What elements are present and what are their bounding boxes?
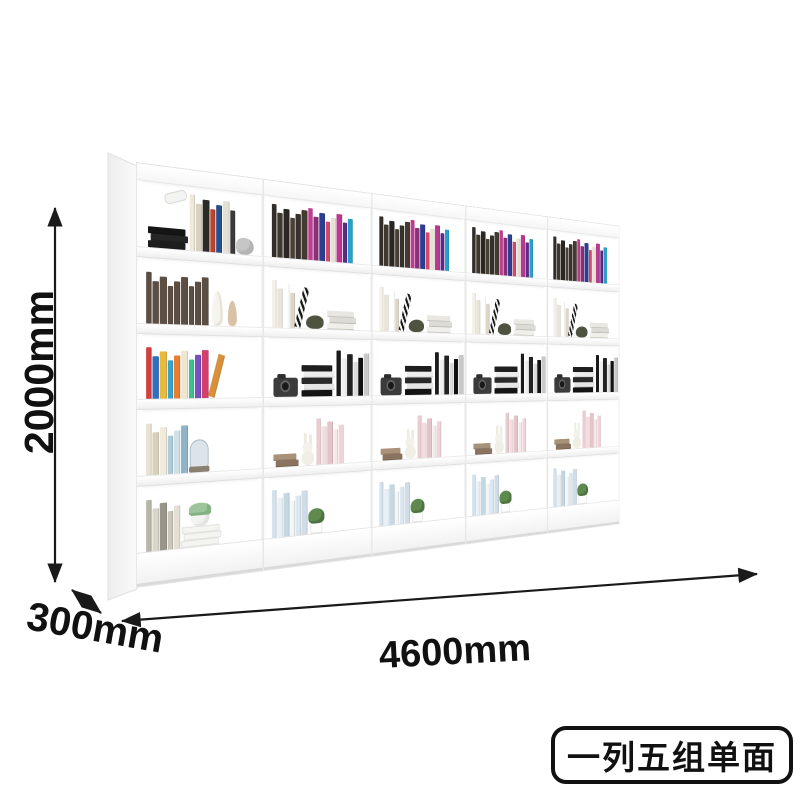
width-dimension-label: 4600mm	[349, 626, 561, 681]
book-spine	[561, 240, 565, 280]
book-spine	[196, 203, 202, 251]
shelf-contents	[146, 421, 254, 476]
shelf-unit	[136, 162, 263, 588]
shelf-contents	[472, 292, 542, 335]
shelf-contents	[379, 286, 459, 333]
book-spine	[521, 354, 524, 394]
shelf-unit	[372, 193, 466, 557]
book-spine	[379, 216, 383, 266]
book-spine	[189, 286, 194, 325]
book-spine	[445, 229, 449, 271]
shelf-contents	[272, 279, 365, 330]
book-spine	[521, 235, 525, 277]
shelf-compartment	[377, 209, 462, 272]
book-stack	[514, 319, 536, 336]
book-spine	[358, 358, 363, 396]
shelf-unit	[548, 216, 620, 533]
book-spine	[296, 495, 301, 535]
book-spine	[439, 360, 443, 395]
book-spine	[513, 241, 516, 276]
potstack-prop	[181, 502, 220, 548]
shelf-contents	[472, 412, 542, 455]
book-spine	[604, 247, 607, 283]
shelf-contents	[553, 298, 614, 339]
book-spine	[400, 225, 405, 267]
book-spine	[146, 500, 151, 552]
book-spine	[561, 470, 565, 506]
book-spine	[223, 201, 230, 254]
rabbit-prop	[572, 422, 582, 449]
book-spine	[283, 493, 289, 537]
deer-prop	[209, 285, 239, 326]
shelf-contents	[379, 414, 459, 461]
bookshelf	[136, 162, 620, 588]
book-stack	[494, 367, 519, 394]
shelf-unit	[263, 179, 372, 571]
book-spine	[146, 348, 151, 400]
book-spine	[508, 234, 512, 276]
book-spine	[189, 360, 194, 399]
book-spine	[472, 292, 475, 333]
book-spine	[160, 352, 167, 399]
book-spine	[441, 233, 445, 271]
shelf-contents	[379, 216, 459, 272]
shelf-compartment	[377, 274, 462, 333]
book-spine	[216, 205, 222, 253]
shelf-compartment	[470, 342, 544, 394]
book-spine	[490, 479, 494, 514]
book-spine	[230, 210, 235, 254]
book-spine	[614, 358, 618, 392]
book-spine	[168, 436, 173, 474]
book-spine	[389, 484, 394, 525]
shelf-compartment	[142, 257, 257, 326]
book-spine	[415, 228, 419, 269]
book-spine	[277, 288, 282, 327]
book-spine	[603, 358, 607, 392]
bookshelf-photo	[136, 162, 800, 588]
book-spine	[153, 432, 159, 475]
book-spine	[585, 243, 589, 282]
book-spine	[418, 415, 422, 458]
book-spine	[347, 354, 353, 396]
book-spine	[405, 221, 410, 267]
shelf-compartment	[551, 230, 616, 284]
book-spine	[427, 418, 432, 458]
book-spine	[596, 243, 600, 283]
book-spine	[476, 234, 480, 273]
book-spine	[529, 357, 533, 393]
shelf-contents	[272, 204, 365, 265]
book-stack	[590, 322, 609, 338]
book-spine	[146, 271, 151, 323]
shelf-contents	[146, 271, 254, 326]
book-spine	[454, 359, 458, 394]
book-spine	[321, 426, 326, 464]
book-spine	[364, 354, 369, 396]
book-spine	[343, 222, 347, 262]
book-spine	[541, 357, 545, 394]
book-spine	[499, 230, 502, 275]
book-spine	[472, 474, 475, 515]
book-spine	[153, 281, 159, 324]
book-spine	[308, 208, 312, 260]
rabbit-prop	[301, 433, 316, 466]
camera-prop	[554, 377, 570, 393]
book-spine	[319, 213, 325, 261]
rabbit-prop	[494, 425, 505, 453]
shelf-contents	[472, 353, 542, 394]
book-spine	[481, 477, 486, 515]
book-spine	[514, 416, 518, 453]
shelf-compartment	[377, 340, 462, 396]
book-spine	[486, 484, 489, 515]
shelf-compartment	[470, 220, 544, 278]
camera-prop	[381, 378, 402, 396]
book-spine	[486, 239, 489, 275]
book-spine	[327, 422, 333, 465]
book-spine	[202, 277, 209, 325]
book-spine	[597, 416, 600, 448]
moss-prop	[576, 326, 588, 337]
shelf-compartment	[377, 465, 462, 527]
book-spine	[174, 281, 180, 324]
shelf-side-panel	[108, 153, 137, 600]
book-spine	[389, 221, 394, 267]
shelf-contents	[272, 350, 365, 398]
book-stack	[554, 439, 571, 450]
book-spine	[433, 426, 437, 458]
book-spine	[573, 469, 577, 505]
book-spine	[526, 242, 529, 277]
shelf-contents	[553, 236, 614, 284]
book-spine	[490, 235, 494, 274]
camera-prop	[273, 378, 297, 397]
book-spine	[537, 360, 541, 393]
book-spine	[517, 238, 521, 277]
shelf-contents	[379, 352, 459, 396]
book-spine	[160, 427, 167, 475]
book-spine	[561, 301, 565, 336]
book-spine	[195, 355, 201, 398]
shelf-compartment	[269, 196, 367, 264]
book-spine	[153, 357, 159, 400]
plant-prop	[577, 482, 588, 505]
book-spine	[290, 500, 295, 536]
book-spine	[379, 482, 383, 526]
shelf-compartment	[142, 479, 257, 553]
shelf-contents	[379, 476, 459, 526]
book-spine	[384, 294, 389, 331]
variant-badge-text: 一列五组单面	[567, 731, 777, 779]
shelf-contents	[146, 188, 254, 255]
book-spine	[181, 426, 188, 474]
book-spine	[168, 361, 173, 399]
book-spine	[405, 482, 410, 523]
book-spine	[174, 356, 180, 399]
book-stack	[148, 226, 188, 250]
book-spine	[168, 285, 173, 323]
book-stack	[381, 448, 403, 461]
book-spine	[506, 413, 509, 453]
book-spine	[435, 225, 440, 270]
book-spine	[181, 351, 188, 399]
book-spine	[557, 243, 561, 280]
variant-badge: 一列五组单面	[551, 726, 793, 784]
book-spine	[509, 420, 513, 453]
book-spine	[430, 228, 434, 269]
book-spine	[573, 241, 577, 281]
book-spine	[181, 276, 188, 324]
book-spine	[379, 286, 383, 330]
shelf-compartment	[142, 408, 257, 476]
height-dimension-label: 2000mm	[16, 267, 62, 477]
book-spine	[450, 363, 454, 394]
book-spine	[384, 489, 389, 526]
shelf-compartment	[269, 337, 367, 397]
book-spine	[174, 431, 180, 474]
book-spine	[337, 214, 343, 263]
book-stack	[405, 366, 433, 395]
book-spine	[400, 487, 405, 524]
shelf-contents	[146, 348, 254, 400]
book-spine	[384, 224, 389, 266]
shelf-compartment	[269, 267, 367, 331]
book-spine	[160, 276, 167, 324]
shelf-compartment	[377, 403, 462, 461]
book-spine	[481, 296, 486, 334]
book-spine	[590, 413, 594, 448]
shelf-compartment	[470, 281, 544, 336]
book-spine	[190, 194, 195, 250]
book-spine	[326, 221, 330, 261]
leaning-book	[208, 354, 225, 398]
book-spine	[395, 491, 399, 524]
book-spine	[195, 281, 201, 325]
book-spine	[334, 429, 338, 463]
shelf-contents	[553, 464, 614, 507]
book-spine	[569, 244, 572, 281]
shelf-compartment	[470, 459, 544, 516]
book-stack	[273, 453, 298, 467]
camera-prop	[473, 378, 491, 395]
book-spine	[272, 279, 277, 327]
book-spine	[420, 224, 425, 269]
book-spine	[422, 423, 426, 459]
book-spine	[529, 239, 533, 278]
shelf-compartment	[551, 287, 616, 338]
book-spine	[290, 217, 295, 258]
shelf-compartment	[142, 334, 257, 400]
shelf-contents	[272, 417, 365, 467]
rabbit-prop	[404, 429, 417, 460]
book-spine	[283, 209, 289, 259]
shelf-contents	[472, 469, 542, 516]
book-spine	[348, 218, 353, 263]
book-spine	[395, 229, 399, 267]
mic-prop	[163, 189, 188, 205]
book-stack	[302, 365, 335, 396]
book-spine	[153, 508, 159, 551]
book-spine	[494, 232, 498, 275]
book-spine	[174, 505, 180, 548]
book-spine	[476, 300, 480, 334]
book-stack	[427, 315, 452, 333]
book-spine	[337, 351, 341, 397]
moss-prop	[306, 315, 324, 329]
book-stack	[573, 367, 595, 393]
shelf-compartment	[142, 181, 257, 256]
book-spine	[476, 481, 480, 515]
depth-dimension-label: 300mm	[7, 592, 182, 667]
book-spine	[342, 359, 347, 397]
plant-prop	[308, 506, 324, 534]
shelf-compartment	[551, 454, 616, 507]
book-spine	[519, 422, 522, 452]
shelf-contents	[472, 227, 542, 279]
shelf-compartment	[551, 344, 616, 393]
book-spine	[283, 284, 289, 328]
book-spine	[472, 227, 475, 273]
book-spine	[272, 204, 277, 257]
book-spine	[316, 419, 320, 465]
book-spine	[203, 199, 210, 251]
book-spine	[353, 362, 357, 396]
book-spine	[313, 216, 318, 260]
book-spine	[277, 212, 282, 257]
plant-prop	[411, 497, 425, 523]
book-spine	[389, 290, 394, 331]
moss-prop	[498, 323, 511, 335]
book-spine	[459, 355, 464, 394]
shelf-compartment	[269, 405, 367, 468]
book-spine	[557, 304, 561, 336]
book-spine	[331, 217, 336, 261]
book-spine	[160, 502, 167, 550]
moss-prop	[409, 319, 424, 332]
book-stack	[473, 443, 492, 455]
book-spine	[522, 418, 526, 452]
book-spine	[437, 421, 441, 457]
book-spine	[302, 210, 308, 260]
book-spine	[426, 232, 430, 269]
book-spine	[296, 214, 301, 259]
shelf-compartment	[269, 471, 367, 538]
book-spine	[494, 475, 498, 513]
shelf-unit	[466, 206, 548, 545]
book-spine	[202, 350, 209, 398]
book-spine	[339, 425, 344, 464]
rock-prop	[236, 237, 254, 255]
shelf-compartment	[470, 401, 544, 455]
book-spine	[557, 474, 561, 506]
book-spine	[569, 473, 572, 505]
shelf-compartment	[551, 400, 616, 450]
book-stack	[327, 310, 356, 329]
plant-prop	[499, 489, 511, 513]
book-spine	[444, 356, 449, 395]
book-spine	[302, 490, 308, 534]
book-spine	[503, 237, 507, 275]
dome-prop	[189, 437, 210, 473]
book-spine	[277, 498, 282, 538]
book-spine	[168, 511, 173, 550]
book-spine	[435, 353, 439, 395]
shelf-contents	[553, 355, 614, 394]
book-spine	[411, 220, 415, 268]
book-spine	[525, 361, 529, 394]
book-spine	[210, 209, 215, 252]
book-spine	[272, 490, 277, 538]
book-spine	[481, 231, 486, 274]
shelf-contents	[553, 410, 614, 450]
product-dimension-image: 2000mm 300mm 4600mm 一列五组单面	[0, 0, 800, 800]
book-spine	[146, 424, 151, 476]
